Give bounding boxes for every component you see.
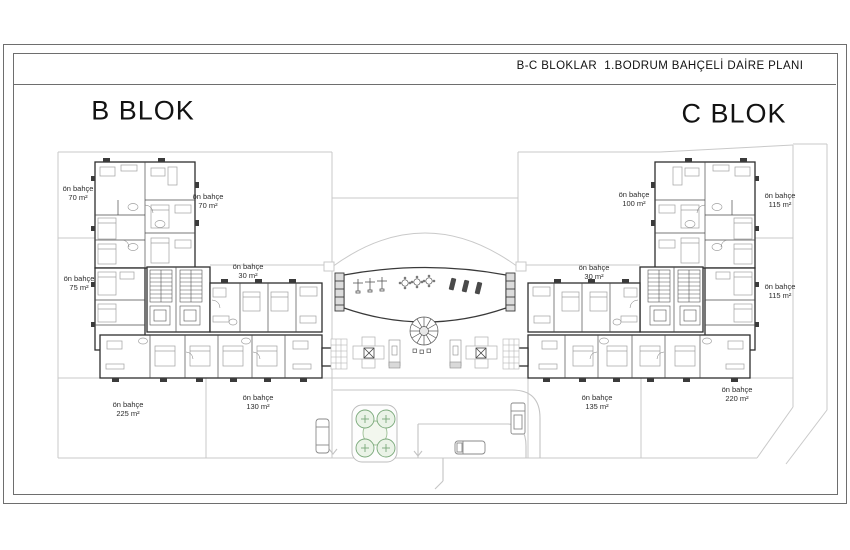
plan-sheet: B-C BLOKLAR 1.BODRUM BAHÇELİ DAİRE PLANI… [0,0,850,550]
central-terrace [324,233,526,322]
garden-label-c2: ön bahçe115 m² [765,191,796,209]
garden-label-c5: ön bahçe135 m² [582,393,613,411]
site-plan-drawing [0,0,850,550]
tree-island [352,405,397,462]
garden-label-b5: ön bahçe225 m² [113,400,144,418]
truck-icon [511,403,525,434]
garden-label-b1: ön bahçe70 m² [63,184,94,202]
garden-label-b2: ön bahçe70 m² [193,192,224,210]
garden-label-c4: ön bahçe115 m² [765,282,796,300]
garden-label-c6: ön bahçe220 m² [722,385,753,403]
car-icon [455,441,485,454]
garden-label-b6: ön bahçe130 m² [243,393,274,411]
car-icon [316,419,329,453]
garden-label-b4: ön bahçe30 m² [233,262,264,280]
garden-label-c3: ön bahçe30 m² [579,263,610,281]
spiral-staircase [410,317,438,354]
garden-label-b3: ön bahçe75 m² [64,274,95,292]
garden-label-c1: ön bahçe100 m² [619,190,650,208]
